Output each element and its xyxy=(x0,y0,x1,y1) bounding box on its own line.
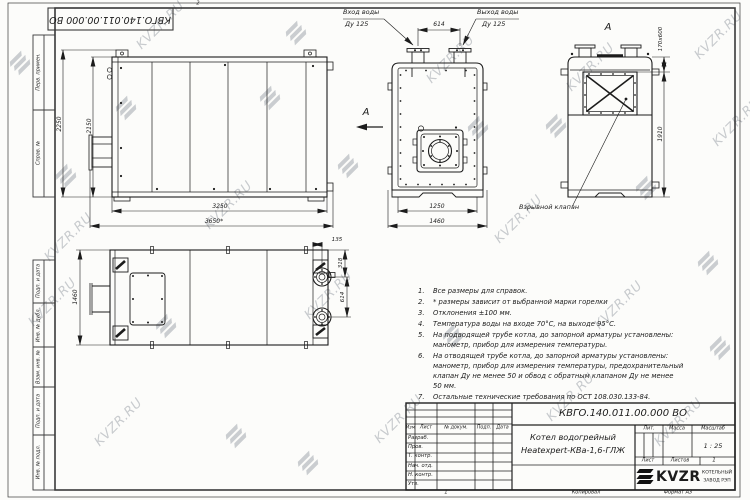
row-tkontr: Т. контр. xyxy=(408,454,432,459)
dim-pipe-spacing-front: 614 xyxy=(433,22,444,28)
scale-label: Масштаб xyxy=(701,427,725,432)
dim-top-edge: 135 xyxy=(332,238,343,244)
outlet-dn-label: Ду 125 xyxy=(482,21,505,28)
col-list: Лист xyxy=(420,427,432,432)
inlet-dn-label: Ду 125 xyxy=(345,21,368,28)
row-nachotd: Нач. отд. xyxy=(408,464,433,469)
dim-valve-size: 170х600 xyxy=(659,27,665,52)
strip-label-podp-data-2: Подп. и дата xyxy=(37,394,42,428)
product-name-line2: Heatexpert-КВа-1,6-ГЛЖ xyxy=(521,446,625,454)
dim-top-spacing: 614 xyxy=(341,292,347,303)
brand-line1: КОТЕЛЬНЫЙ xyxy=(702,472,732,477)
strip-label-vzam-inv: Взам. инв. № xyxy=(37,350,42,384)
valve-label: Взрывной клапан xyxy=(519,204,579,211)
row-utv: Утв. xyxy=(408,482,419,487)
outlet-label: Выход воды xyxy=(477,9,518,16)
note-item: 7.Остальные технические требования по ОС… xyxy=(418,393,718,403)
col-podp: Подп. xyxy=(477,427,492,432)
drawing-linework xyxy=(0,0,750,500)
col-data: Дата xyxy=(496,427,508,432)
row-nkontr: Н. контр. xyxy=(408,473,433,478)
fold-mark-top: 2 xyxy=(196,2,199,7)
lit-label: Лит. xyxy=(643,427,655,432)
dim-top-width: 1460 xyxy=(73,289,79,304)
product-name-line1: Котел водогрейный xyxy=(530,433,616,441)
dim-width-overall: 1460 xyxy=(429,219,444,225)
sheets-label: Листов xyxy=(671,459,690,464)
note-item: 1.Все размеры для справок. xyxy=(418,287,718,297)
dim-height-body: 2150 xyxy=(87,118,93,133)
rear-view-title: А xyxy=(605,23,612,33)
view-rear xyxy=(561,45,659,197)
copy-label: Копировал xyxy=(572,491,601,496)
title-block-designation: КВГО.140.011.00.000 ВО xyxy=(559,409,687,419)
designation-top: КВГО.140.011.00.000 ВО xyxy=(49,14,171,24)
kvzr-logo-icon xyxy=(638,469,652,484)
dim-length-overall: 3650* xyxy=(205,219,223,225)
dim-height-outer: 2250 xyxy=(57,116,63,131)
brand-line2: ЗАВОД РЭП xyxy=(703,480,730,485)
note-item: 3.Отклонения ±100 мм. xyxy=(418,309,718,319)
sheet-label: Лист xyxy=(642,459,655,464)
row-razrab: Разраб. xyxy=(408,436,428,441)
view-top xyxy=(90,247,335,349)
strip-label-perv-primen: Перв. примен. xyxy=(37,53,42,91)
view-front xyxy=(388,49,487,198)
row-prov: Пров. xyxy=(408,445,423,450)
strip-label-sprav-no: Справ. № xyxy=(37,141,42,165)
mass-label: Масса xyxy=(669,427,685,432)
note-item: 5.На подводящей трубе котла, до запорной… xyxy=(418,331,718,351)
drawing-sheet: KVZR.RUKVZR.RUKVZR.RUKVZR.RUKVZR.RUKVZR.… xyxy=(0,0,750,500)
view-side xyxy=(89,50,333,201)
view-arrow xyxy=(356,124,383,131)
note-item: 4.Температура воды на входе 70°С, на вых… xyxy=(418,320,718,330)
note-item: 2.* размеры зависит от выбранной марки г… xyxy=(418,298,718,308)
fold-mark-bottom: 1 xyxy=(444,491,447,496)
sheets-value: 1 xyxy=(712,458,716,464)
col-izm: Изм xyxy=(406,427,415,432)
dim-rear-height: 1910 xyxy=(658,126,664,141)
strip-label-podp-data-1: Подп. и дата xyxy=(37,264,42,298)
col-doc: № докум. xyxy=(444,427,468,432)
inlet-label: Вход воды xyxy=(343,9,379,16)
dim-length-body: 3250 xyxy=(212,204,227,210)
bolt-dots xyxy=(120,49,649,325)
format-label: Формат А3 xyxy=(664,491,692,496)
strip-label-inv-dubl: Инв. № дубл. xyxy=(37,308,42,342)
scale-value: 1 : 25 xyxy=(704,443,723,450)
view-arrow-label: А xyxy=(363,108,370,118)
dim-top-first: 318 xyxy=(339,258,345,269)
note-item: 6.На отводящей трубе котла, до запорной … xyxy=(418,352,718,391)
strip-label-inv-podl: Инв. № подл. xyxy=(37,445,42,480)
dim-width-body: 1250 xyxy=(429,204,444,210)
technical-notes: 1.Все размеры для справок. 2.* размеры з… xyxy=(418,287,718,404)
brand-name: KVZR xyxy=(656,470,701,484)
